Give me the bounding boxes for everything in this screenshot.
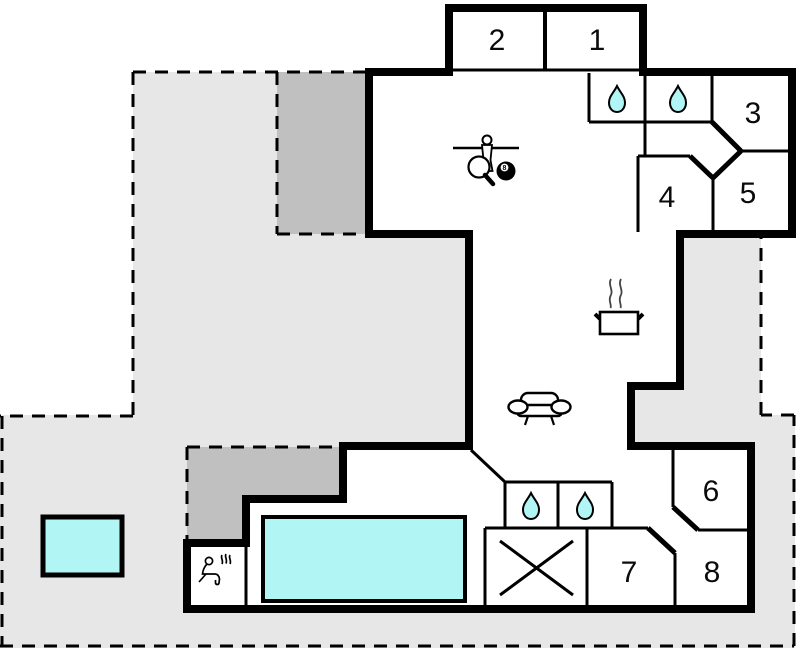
- floor-plan-canvas: 8 1 2 3 4 5 6 7 8: [0, 0, 799, 652]
- room-label-1: 1: [589, 24, 606, 57]
- room-label-7: 7: [621, 556, 638, 589]
- pot-body: [600, 312, 638, 334]
- sofa-armrest: [552, 401, 571, 414]
- billiard-ball-number: 8: [503, 165, 507, 172]
- room-label-2: 2: [489, 24, 506, 57]
- steam-line: [221, 555, 222, 564]
- steam-line: [225, 554, 226, 564]
- room-label-8: 8: [704, 556, 721, 589]
- room-label-3: 3: [745, 97, 762, 130]
- room-label-4: 4: [659, 181, 676, 214]
- hot-tub: [43, 517, 122, 575]
- foosball-player-head: [483, 136, 492, 145]
- room-label-5: 5: [740, 177, 757, 210]
- floor-plan: 8 1 2 3 4 5 6 7 8: [0, 0, 799, 652]
- covered-terrace-upper: [277, 72, 367, 234]
- room-label-6: 6: [703, 475, 720, 508]
- sofa-armrest: [509, 401, 528, 414]
- swimming-pool: [263, 517, 465, 601]
- steam-line: [229, 555, 230, 564]
